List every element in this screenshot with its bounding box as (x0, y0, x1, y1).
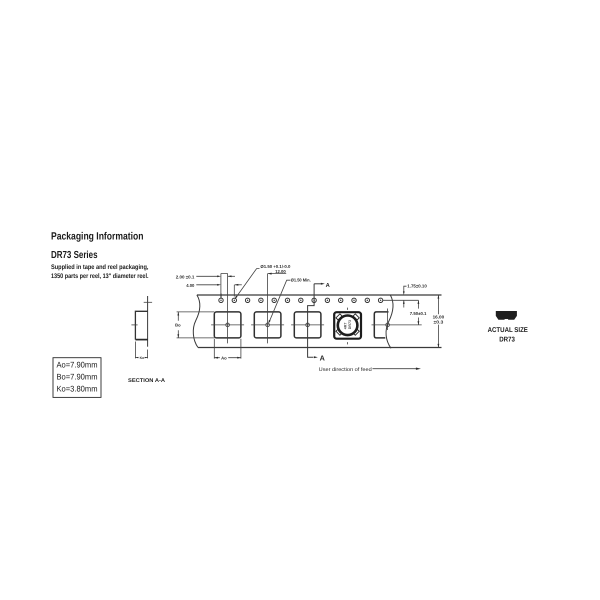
svg-text:DR73 Series: DR73 Series (51, 250, 98, 261)
svg-text:Packaging Information: Packaging Information (51, 231, 144, 243)
svg-text:Ko=3.80mm: Ko=3.80mm (57, 384, 98, 393)
svg-text:ACTUAL SIZE: ACTUAL SIZE (488, 327, 529, 334)
svg-text:User direction of feed: User direction of feed (319, 367, 372, 373)
svg-text:7.50±0.1: 7.50±0.1 (410, 311, 427, 316)
svg-text:4.00: 4.00 (186, 283, 195, 288)
svg-text:Supplied in tape and reel pack: Supplied in tape and reel packaging, (51, 264, 149, 271)
svg-text:Ko: Ko (140, 356, 145, 360)
svg-text:Ao: Ao (221, 355, 227, 360)
svg-text:DR73: DR73 (499, 337, 515, 344)
svg-text:1.75±0.10: 1.75±0.10 (407, 284, 427, 289)
svg-text:1350 parts per reel, 13" diame: 1350 parts per reel, 13" diameter reel. (51, 273, 149, 280)
svg-text:Ø1.50 Min.: Ø1.50 Min. (291, 277, 311, 282)
svg-text:±0.3: ±0.3 (434, 320, 445, 325)
svg-text:DR73: DR73 (348, 320, 352, 329)
svg-text:SECTION A-A: SECTION A-A (128, 378, 165, 384)
svg-text:Bo: Bo (175, 322, 181, 327)
svg-text:4R7: 4R7 (343, 323, 347, 330)
svg-text:2.00 ±0.1: 2.00 ±0.1 (176, 274, 195, 279)
svg-text:Bo=7.90mm: Bo=7.90mm (57, 373, 98, 382)
svg-text:A: A (320, 354, 325, 363)
svg-text:12.00: 12.00 (275, 269, 286, 274)
svg-text:Ao=7.90mm: Ao=7.90mm (57, 360, 98, 369)
